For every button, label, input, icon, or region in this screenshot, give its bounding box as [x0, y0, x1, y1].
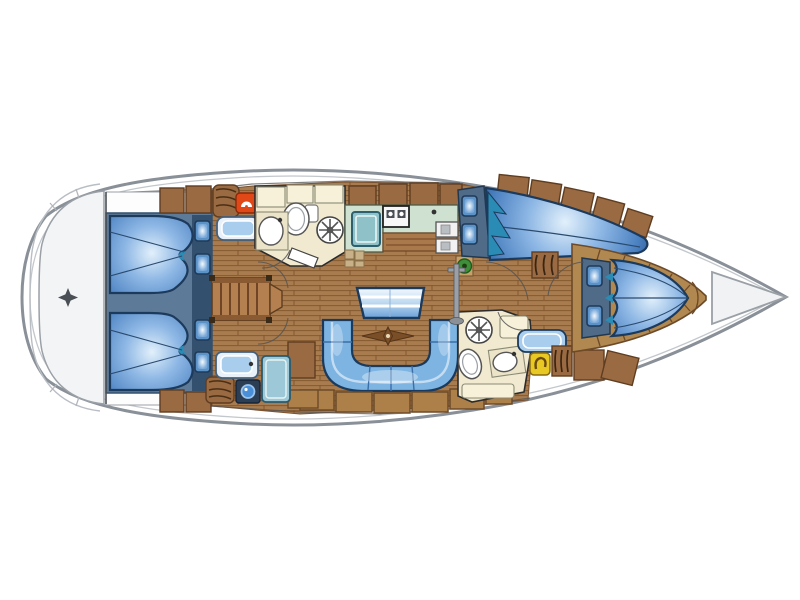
aft-cabin-seat: [217, 217, 259, 240]
pillow: [195, 254, 210, 274]
pillow: [195, 320, 210, 340]
shower-drain: [466, 317, 492, 343]
boat-floor-plan: [0, 0, 800, 600]
sideboard: [288, 342, 315, 378]
faucet: [278, 218, 282, 222]
locker: [160, 188, 184, 213]
pillow: [462, 224, 477, 244]
forward-head: [455, 310, 532, 402]
aft-head: [255, 185, 345, 268]
yellow-fixture-icon: [530, 353, 550, 375]
step-rail: [212, 278, 270, 283]
pillow: [587, 306, 602, 326]
cabinet: [315, 185, 343, 203]
cabinet: [287, 185, 313, 203]
locker: [186, 186, 211, 213]
stern-swim-platform: [30, 184, 104, 411]
faucet: [249, 362, 253, 366]
washbasin: [256, 212, 288, 250]
locker: [160, 390, 184, 412]
hanging-locker-louvered: [213, 185, 239, 217]
stove: [383, 206, 409, 227]
blue-fixture-icon: [236, 380, 260, 403]
pillow: [462, 196, 477, 216]
galley-sink: [352, 212, 380, 246]
louvered-locker: [532, 252, 558, 278]
galley-steps: [345, 250, 364, 267]
faucet: [432, 210, 437, 215]
red-fixture-icon: [236, 193, 257, 213]
floor-plan-canvas: [0, 0, 800, 600]
salon-table: [357, 288, 424, 318]
shower-drain: [317, 217, 343, 243]
cabin-washbasin: [216, 352, 258, 378]
cabinet: [257, 187, 285, 207]
hanging-locker-louvered: [206, 377, 234, 403]
port-vanity: [206, 352, 290, 403]
locker: [574, 350, 604, 380]
aft-cabins-block: [106, 192, 212, 405]
step-rail: [212, 315, 270, 320]
locker: [410, 183, 438, 208]
pillow: [587, 266, 602, 286]
pillow: [195, 221, 210, 241]
refrigerator-unit: [436, 222, 458, 253]
faucet: [512, 352, 516, 356]
cabinet: [462, 384, 514, 398]
pillow: [195, 352, 210, 372]
louvered-locker: [552, 346, 572, 376]
locker: [288, 390, 318, 408]
